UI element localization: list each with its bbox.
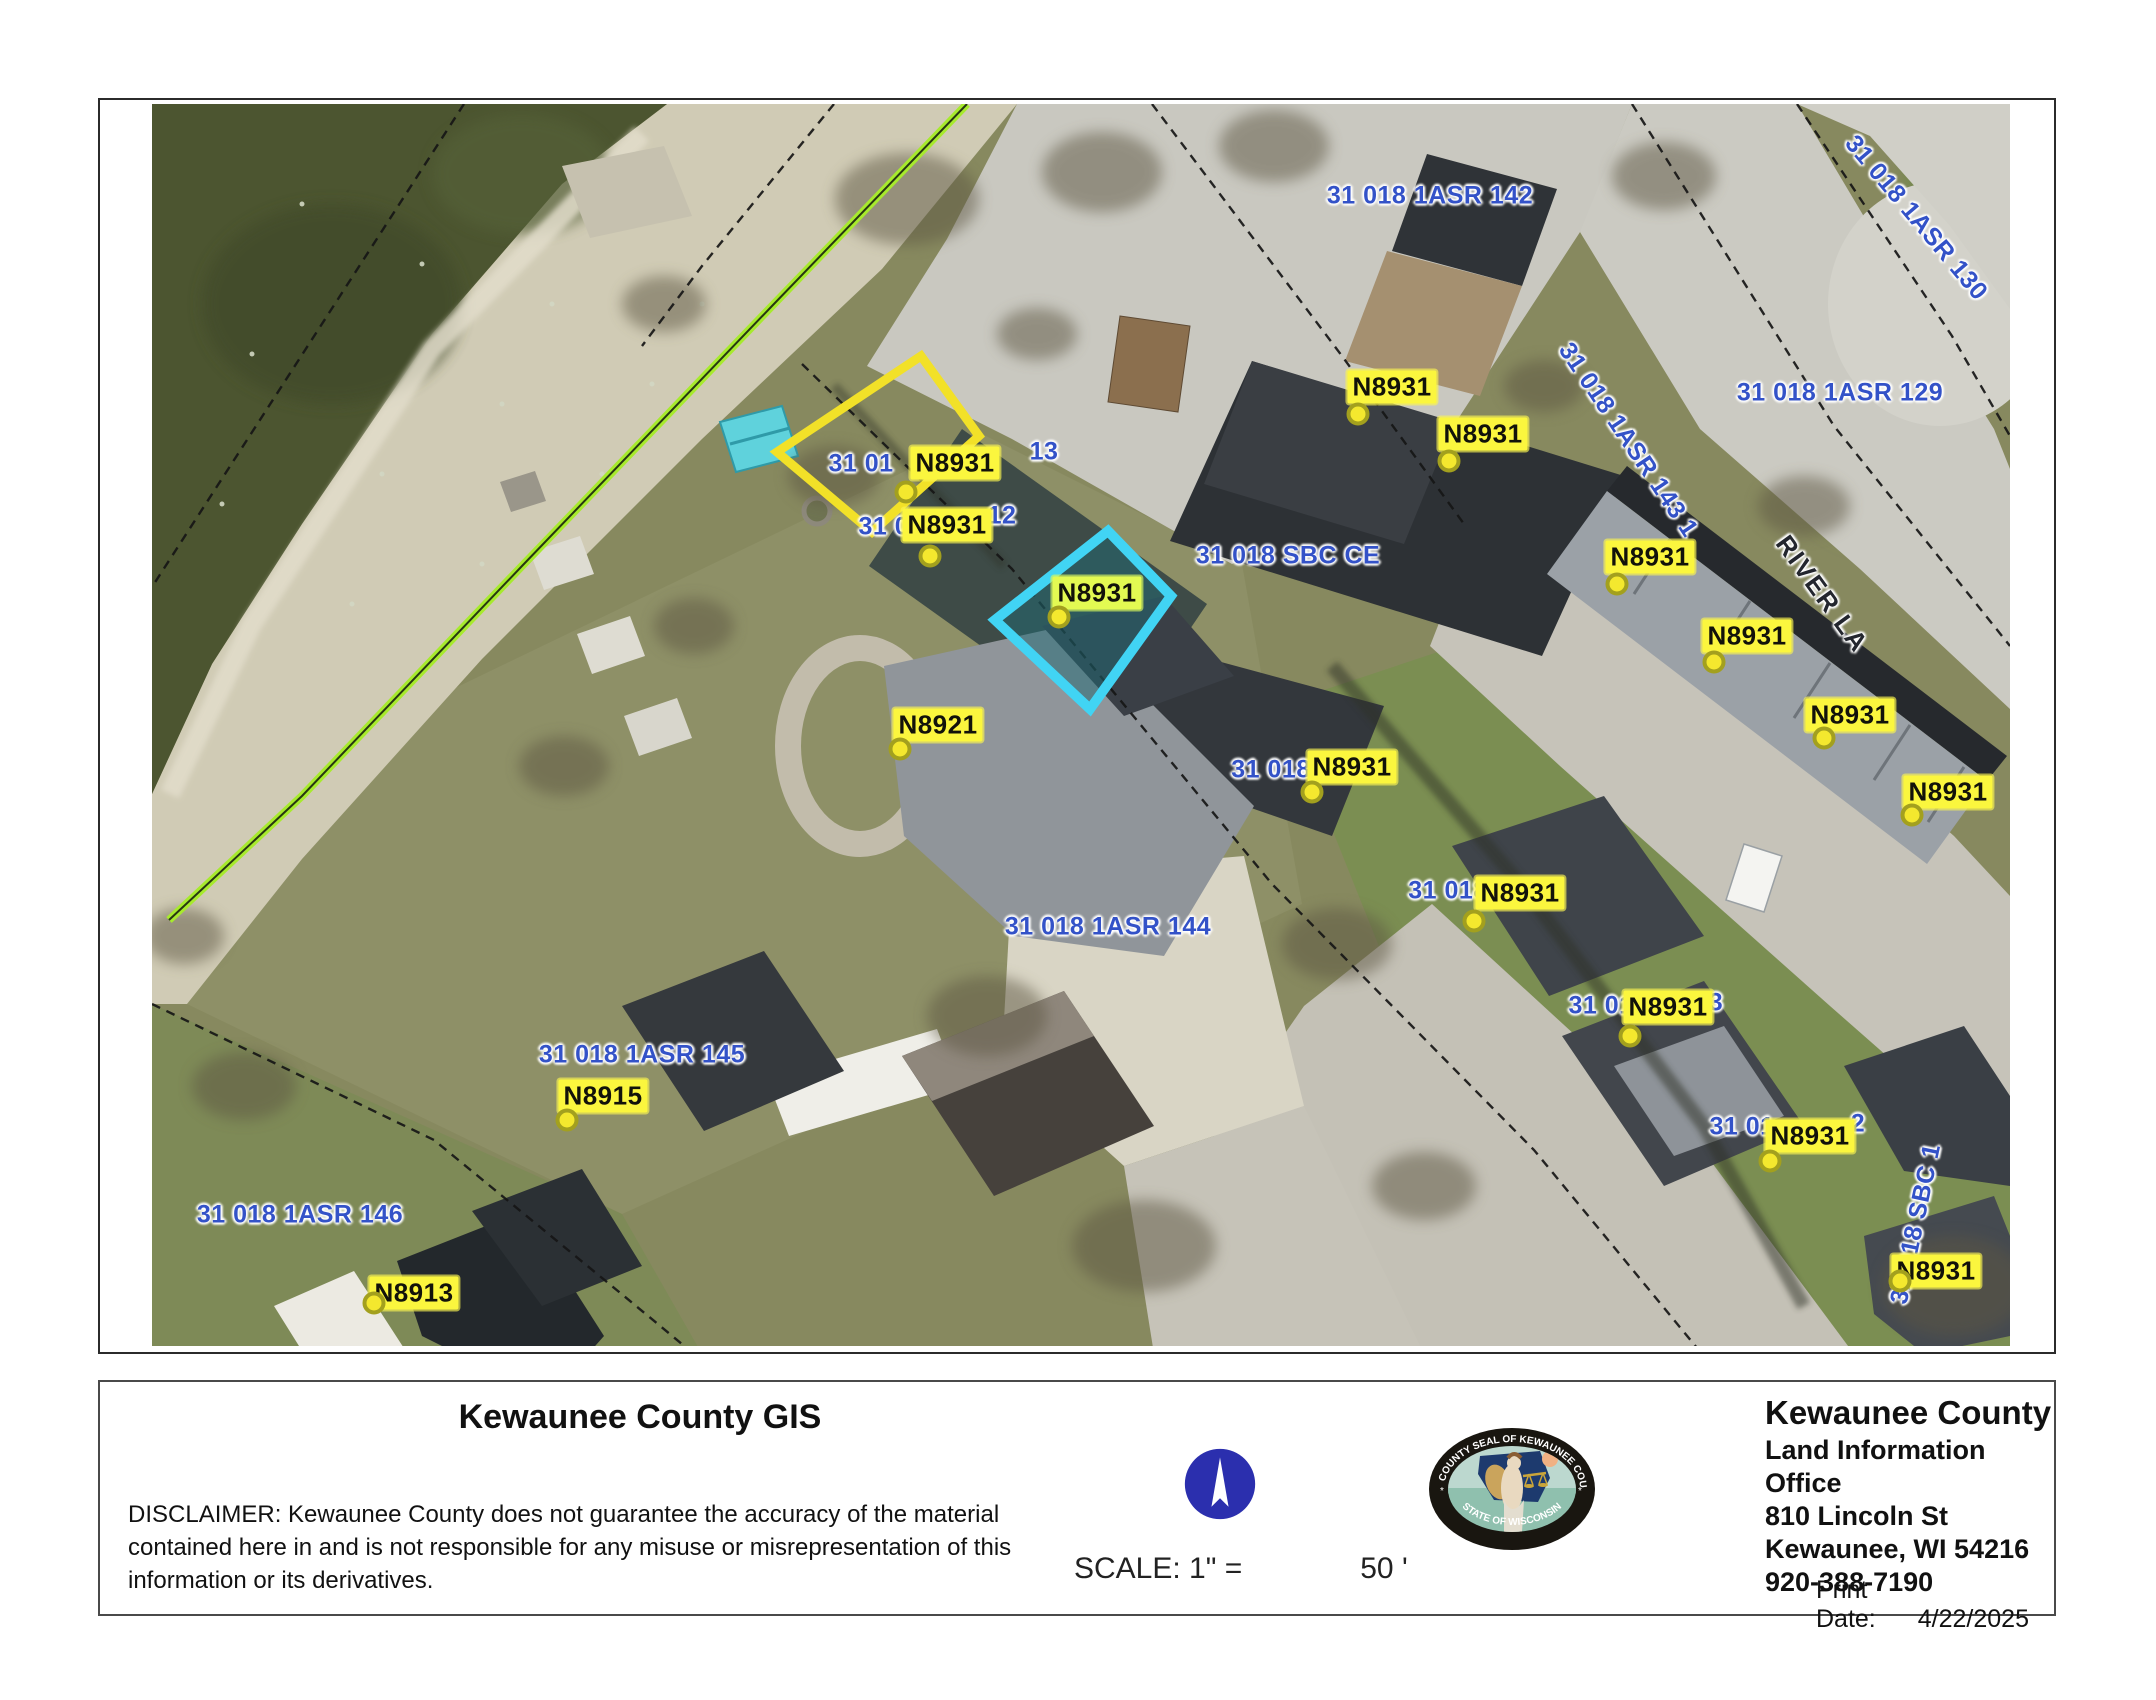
address-point-marker	[1813, 727, 1836, 750]
svg-text:*: *	[1440, 1486, 1444, 1497]
parcel-label: 31 018 1ASR 130	[1839, 130, 1994, 307]
parcel-label: 31 018 1ASR 129	[1737, 379, 1943, 408]
address-point-marker	[363, 1292, 386, 1315]
print-date-row: Print Date:4/22/2025	[1816, 1576, 2054, 1634]
address-label: N8915	[558, 1080, 647, 1113]
svg-text:*: *	[1578, 1486, 1582, 1497]
footer-panel: Kewaunee County GIS DISCLAIMER: Kewaunee…	[98, 1380, 2056, 1616]
disclaimer-text: DISCLAIMER: Kewaunee County does not gua…	[128, 1498, 1011, 1597]
county-info-block: Kewaunee County Land Information Office …	[1765, 1392, 2054, 1599]
address-point-marker	[1301, 781, 1324, 804]
scale-label: SCALE: 1" =	[1074, 1552, 1242, 1585]
scale-text: SCALE: 1" =50 '	[1074, 1552, 1408, 1586]
scale-value: 50 '	[1360, 1552, 1407, 1585]
address-point-marker	[895, 481, 918, 504]
address-point-marker	[919, 545, 942, 568]
county-address2: Kewaunee, WI 54216	[1765, 1533, 2054, 1566]
address-label: N8931	[1347, 371, 1436, 404]
county-name: Kewaunee County	[1765, 1392, 2054, 1434]
county-office: Land Information Office	[1765, 1434, 2054, 1500]
parcel-label: 13	[1030, 438, 1059, 467]
address-label: N8931	[1765, 1120, 1854, 1153]
page-title: Kewaunee County GIS	[260, 1398, 1020, 1437]
address-label: N8921	[893, 709, 982, 742]
address-point-marker	[1703, 651, 1726, 674]
disclaimer-line: DISCLAIMER: Kewaunee County does not gua…	[128, 1501, 999, 1528]
county-address1: 810 Lincoln St	[1765, 1500, 2054, 1533]
print-date-value: 4/22/2025	[1918, 1605, 2029, 1633]
address-label: N8931	[910, 447, 999, 480]
address-label: N8931	[1438, 418, 1527, 451]
address-point-marker	[1759, 1150, 1782, 1173]
parcel-label: 31 018	[1231, 756, 1310, 785]
parcel-label: 31 018 1ASR 145	[539, 1041, 745, 1070]
address-label: N8931	[1623, 991, 1712, 1024]
parcel-label: 31 018 1ASR 146	[197, 1201, 403, 1230]
address-point-marker	[556, 1109, 579, 1132]
address-label: N8931	[902, 509, 991, 542]
parcel-label: 31 01	[828, 450, 893, 479]
address-point-marker	[1606, 573, 1629, 596]
disclaimer-line: information or its derivatives.	[128, 1567, 433, 1594]
county-seal: COUNTY SEAL OF KEWAUNEE COUNTY STATE OF …	[1428, 1426, 1596, 1552]
address-label: N8931	[1605, 541, 1694, 574]
address-point-marker	[1889, 1270, 1912, 1293]
address-point-marker	[1901, 804, 1924, 827]
address-label: N8931	[1307, 751, 1396, 784]
parcel-label: 31 018 SBC CE	[1196, 542, 1380, 571]
address-label: N8931	[1475, 877, 1564, 910]
north-arrow-icon	[1182, 1446, 1258, 1522]
address-point-marker	[1438, 450, 1461, 473]
disclaimer-line: contained here in and is not responsible…	[128, 1534, 1011, 1561]
parcel-label: 31 018 1ASR 142	[1327, 182, 1533, 211]
address-point-marker	[1619, 1025, 1642, 1048]
address-point-marker	[1347, 403, 1370, 426]
address-point-marker	[889, 738, 912, 761]
address-label: N8931	[1903, 776, 1992, 809]
address-point-marker	[1463, 910, 1486, 933]
address-point-marker	[1048, 606, 1071, 629]
print-date-label: Print Date:	[1816, 1576, 1876, 1633]
address-label: N8931	[1702, 620, 1791, 653]
address-label: N8931	[1052, 577, 1141, 610]
parcel-label: 12	[988, 502, 1017, 531]
parcel-label: 31 018 1ASR 143 1	[1552, 337, 1704, 542]
parcel-label: 31 018 1ASR 144	[1005, 913, 1211, 942]
